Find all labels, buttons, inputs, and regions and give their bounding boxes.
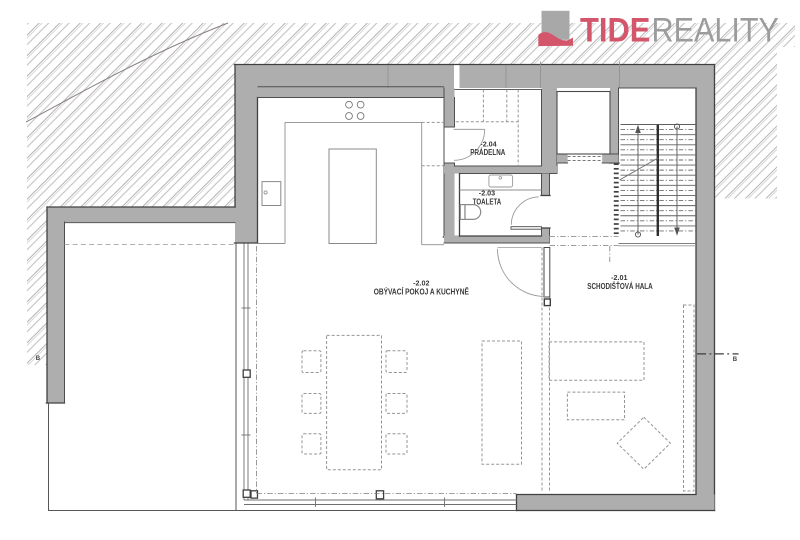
svg-text:-2.02: -2.02	[413, 279, 429, 288]
svg-text:TIDE: TIDE	[580, 12, 650, 50]
svg-text:B: B	[733, 357, 738, 363]
svg-text:B: B	[36, 356, 41, 362]
svg-text:-2.01: -2.01	[611, 273, 627, 282]
svg-text:SCHODIŠŤOVÁ HALA: SCHODIŠŤOVÁ HALA	[587, 282, 653, 291]
svg-text:OBÝVACÍ POKOJ A KUCHYNĚ: OBÝVACÍ POKOJ A KUCHYNĚ	[374, 287, 469, 296]
svg-text:PRÁDELNA: PRÁDELNA	[470, 148, 505, 157]
svg-text:REALITY: REALITY	[652, 12, 779, 50]
